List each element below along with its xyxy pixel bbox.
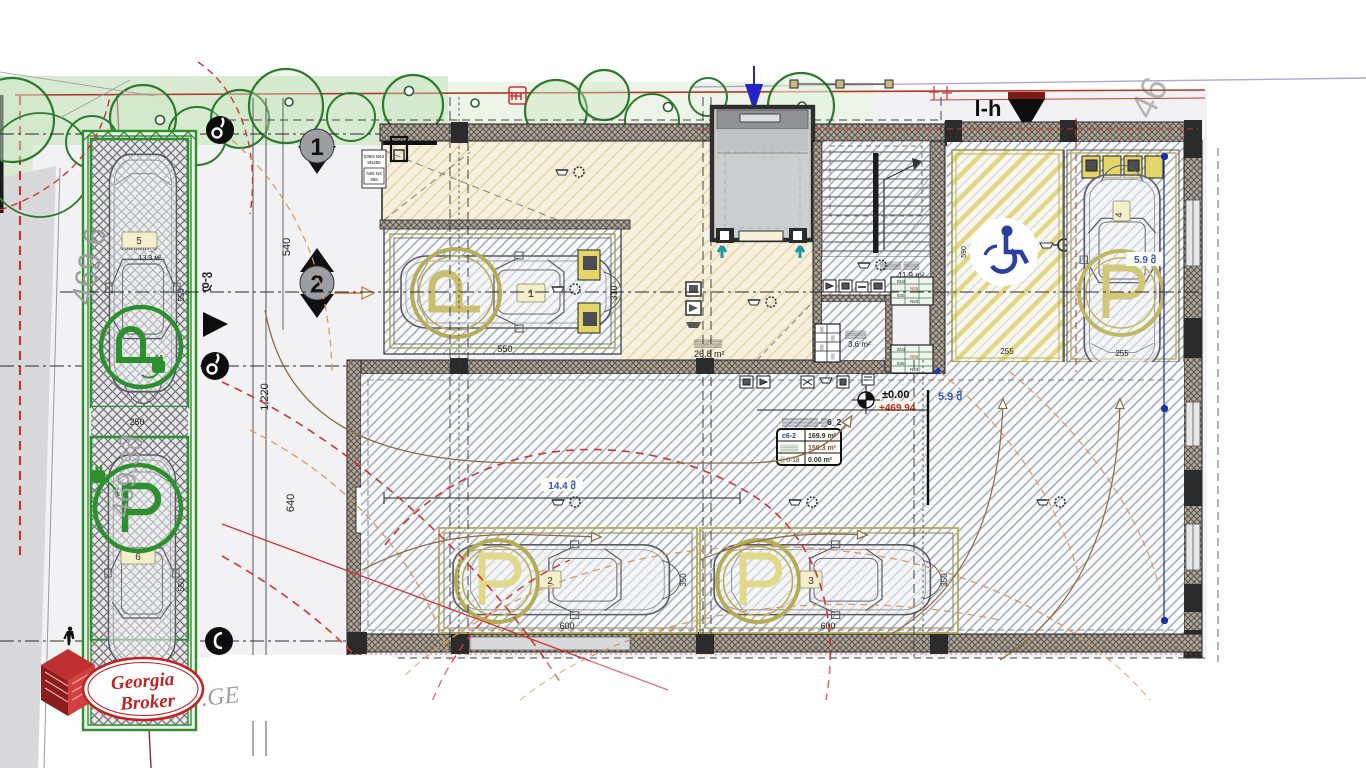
svg-text:600: 600 [820, 621, 835, 631]
svg-text:დ-ვ: დ-ვ [198, 272, 213, 292]
svg-text:l-h: l-h [975, 96, 1002, 121]
svg-text:5: 5 [136, 236, 142, 247]
svg-text:835: 835 [897, 293, 905, 298]
svg-text:▒▒▒▒: ▒▒▒▒ [845, 330, 867, 339]
svg-text:540: 540 [281, 238, 293, 256]
svg-text:250: 250 [129, 417, 144, 427]
svg-text:1: 1 [528, 288, 534, 300]
svg-text:13.3 м²: 13.3 м² [139, 255, 162, 262]
svg-text:+469.94: +469.94 [879, 403, 916, 414]
svg-text:5.9 მ: 5.9 მ [938, 390, 962, 403]
svg-text:535N N63: 535N N63 [364, 154, 385, 159]
svg-text:2: 2 [310, 271, 323, 298]
svg-text:N55: N55 [910, 354, 919, 359]
svg-text:355: 355 [370, 177, 378, 182]
svg-text:Broker: Broker [119, 690, 177, 715]
svg-text:5N3: 5N3 [897, 279, 906, 284]
svg-text:550: 550 [497, 344, 512, 354]
svg-text:0.00 m²: 0.00 m² [808, 457, 833, 464]
svg-text:N55: N55 [910, 286, 919, 291]
svg-text:14.4 მ: 14.4 მ [548, 480, 575, 492]
svg-text:N53: N53 [910, 299, 919, 304]
svg-text:835: 835 [897, 361, 905, 366]
svg-text:▒▒▒▒▒: ▒▒▒▒▒ [694, 339, 723, 348]
svg-text:255: 255 [1115, 349, 1129, 358]
svg-text:550: 550 [177, 288, 186, 302]
svg-text:▒▒▒▒: ▒▒▒▒ [780, 444, 799, 452]
svg-text:N55 N3: N55 N3 [366, 171, 382, 176]
svg-text:255: 255 [1000, 347, 1014, 356]
svg-text:±0.00: ±0.00 [882, 389, 909, 401]
svg-text:1,220: 1,220 [259, 383, 271, 411]
svg-text:▒: ▒ [820, 326, 824, 333]
svg-text:350: 350 [679, 573, 688, 587]
svg-text:▒: ▒ [820, 344, 824, 351]
svg-text:550: 550 [177, 578, 186, 592]
svg-text:▒: ▒ [831, 353, 835, 360]
svg-text:.GE: .GE [200, 682, 241, 712]
svg-text:600: 600 [559, 621, 574, 631]
svg-text:6: 6 [135, 552, 141, 563]
svg-text:8N355: 8N355 [367, 160, 381, 165]
svg-text:1: 1 [310, 134, 323, 161]
svg-text:4: 4 [1114, 212, 1124, 217]
svg-text:5N3: 5N3 [897, 347, 906, 352]
svg-text:26.8 m²: 26.8 m² [694, 349, 725, 359]
svg-text:▒: ▒ [831, 335, 835, 342]
svg-text:590: 590 [961, 246, 968, 258]
svg-text:310: 310 [609, 285, 619, 300]
svg-text:5.9 მ: 5.9 მ [1134, 254, 1156, 266]
svg-text:с6-2: с6-2 [782, 433, 796, 440]
svg-text:640: 640 [285, 494, 297, 512]
svg-text:▒▒▒▒▒▒-▒6_2: ▒▒▒▒▒▒-▒6_2 [782, 417, 841, 427]
svg-text:3: 3 [808, 576, 814, 587]
svg-text:3.6 m²: 3.6 m² [848, 340, 871, 349]
